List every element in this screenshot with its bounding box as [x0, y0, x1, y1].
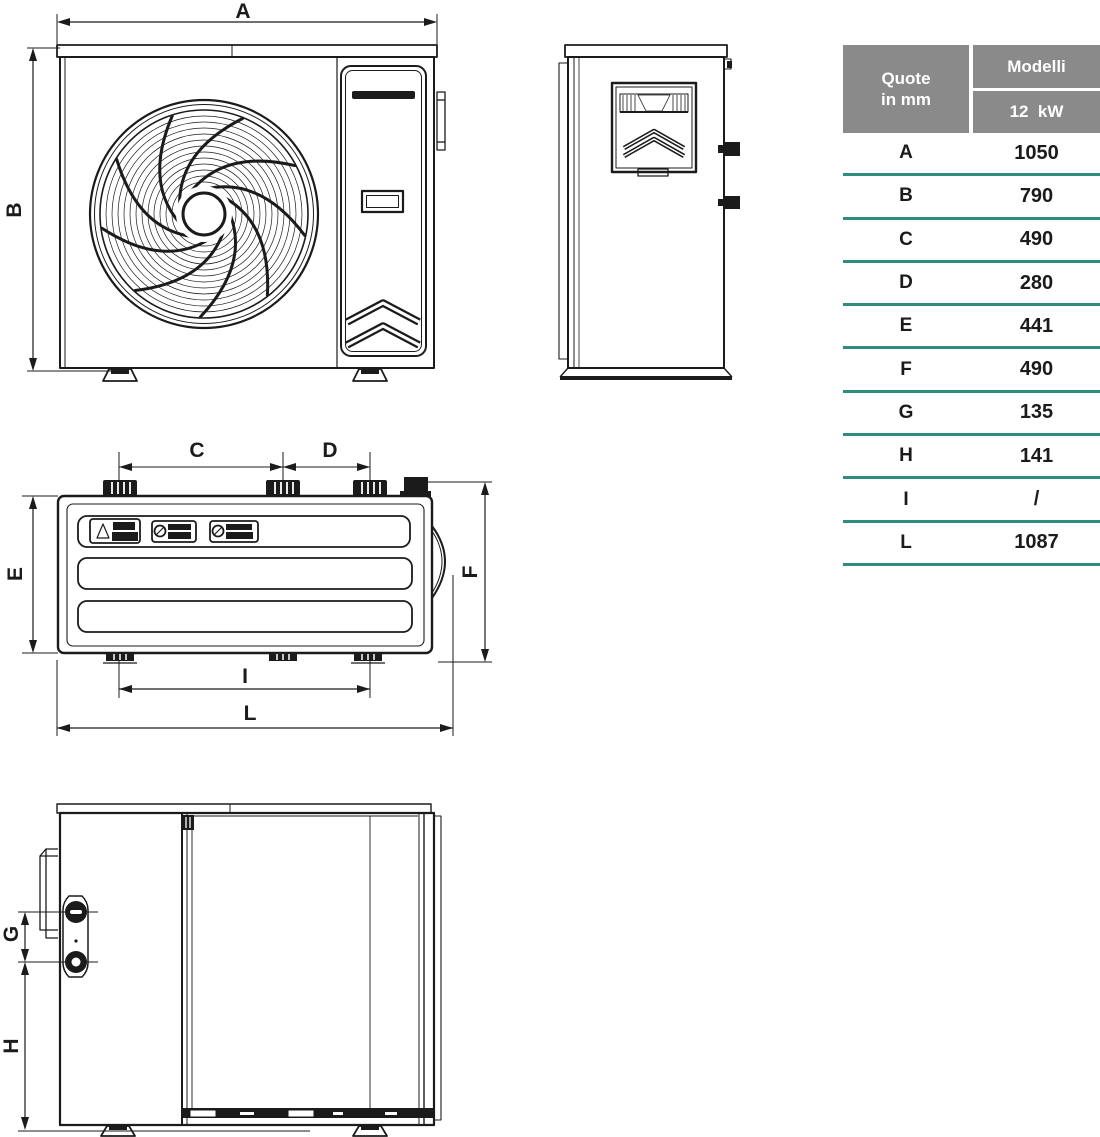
knob-icon — [400, 477, 431, 497]
side-view-drawing — [559, 45, 740, 378]
side-bracket — [437, 92, 445, 150]
dim-letter-cell: F — [843, 359, 969, 381]
dim-value-cell: / — [973, 488, 1100, 511]
dim-label-b: B — [3, 202, 27, 217]
dim-label-l: L — [244, 702, 257, 726]
dim-letter-cell: A — [843, 142, 969, 164]
dim-value-cell: 135 — [973, 401, 1100, 424]
dim-value-cell: 790 — [973, 185, 1100, 208]
dim-label-g: G — [0, 926, 24, 942]
quote-header-line2: in mm — [881, 89, 931, 110]
table-row: E 441 — [843, 306, 1100, 349]
back-view-drawing — [18, 804, 441, 1136]
dim-value-cell: 1087 — [973, 531, 1100, 554]
mounting-foot-icon — [103, 653, 385, 663]
dim-value-cell: 490 — [973, 358, 1100, 381]
vent-window — [612, 83, 696, 176]
table-row: A 1050 — [843, 133, 1100, 176]
mounting-foot-icon — [103, 480, 387, 496]
dim-letter-cell: L — [843, 532, 969, 554]
valve-icon — [718, 142, 740, 209]
quote-header-line1: Quote — [881, 68, 930, 89]
dim-label-i: I — [242, 665, 248, 689]
foot-icon — [103, 369, 387, 381]
dim-value-cell: 280 — [973, 272, 1100, 295]
dim-value-cell: 141 — [973, 445, 1100, 468]
dim-label-e: E — [4, 567, 28, 581]
dim-letter-cell: I — [843, 489, 969, 511]
dim-label-a: A — [235, 0, 250, 24]
dim-label-f: F — [459, 566, 483, 579]
table-row: C 490 — [843, 220, 1100, 263]
technical-drawing-page: A B C D E F I L G H Quote in mm Modelli … — [0, 0, 1100, 1137]
table-row: G 135 — [843, 393, 1100, 436]
table-row: D 280 — [843, 263, 1100, 306]
dim-letter-cell: D — [843, 272, 969, 294]
fan-grille-icon — [90, 100, 318, 328]
bottom-rail — [183, 1108, 434, 1118]
dim-letter-cell: G — [843, 402, 969, 424]
service-panel — [341, 66, 426, 356]
dim-value-cell: 441 — [973, 315, 1100, 338]
dim-letter-cell: E — [843, 315, 969, 337]
dim-label-c: C — [189, 439, 204, 463]
dim-letter-cell: H — [843, 445, 969, 467]
table-row: L 1087 — [843, 523, 1100, 566]
models-header-cell: Modelli — [973, 45, 1100, 88]
hinge-icon — [183, 815, 194, 830]
dim-letter-cell: C — [843, 229, 969, 251]
dim-value-cell: 490 — [973, 228, 1100, 251]
table-row: F 490 — [843, 349, 1100, 392]
top-view-drawing — [22, 452, 492, 736]
dimension-B — [27, 48, 112, 371]
dimension-H — [18, 962, 310, 1131]
handle-icon — [362, 191, 403, 212]
wall-bracket — [40, 849, 58, 938]
warning-label-icon — [90, 519, 258, 543]
dim-letter-cell: B — [843, 185, 969, 207]
dim-label-d: D — [322, 439, 337, 463]
chevron-up-icon — [624, 131, 684, 156]
pipe-connection-icon — [18, 896, 98, 977]
table-row: I / — [843, 479, 1100, 522]
chevron-up-icon — [347, 303, 419, 345]
dimensions-table: Quote in mm Modelli 12 kW A 1050 B 790 C… — [843, 45, 1100, 566]
table-header: Quote in mm Modelli 12 kW — [843, 45, 1100, 133]
model-header-cell: 12 kW — [973, 91, 1100, 133]
front-view-drawing — [27, 14, 445, 381]
table-row: H 141 — [843, 436, 1100, 479]
dim-label-h: H — [0, 1038, 24, 1053]
table-row: B 790 — [843, 176, 1100, 219]
dim-value-cell: 1050 — [973, 142, 1100, 165]
quote-header-cell: Quote in mm — [843, 45, 969, 133]
